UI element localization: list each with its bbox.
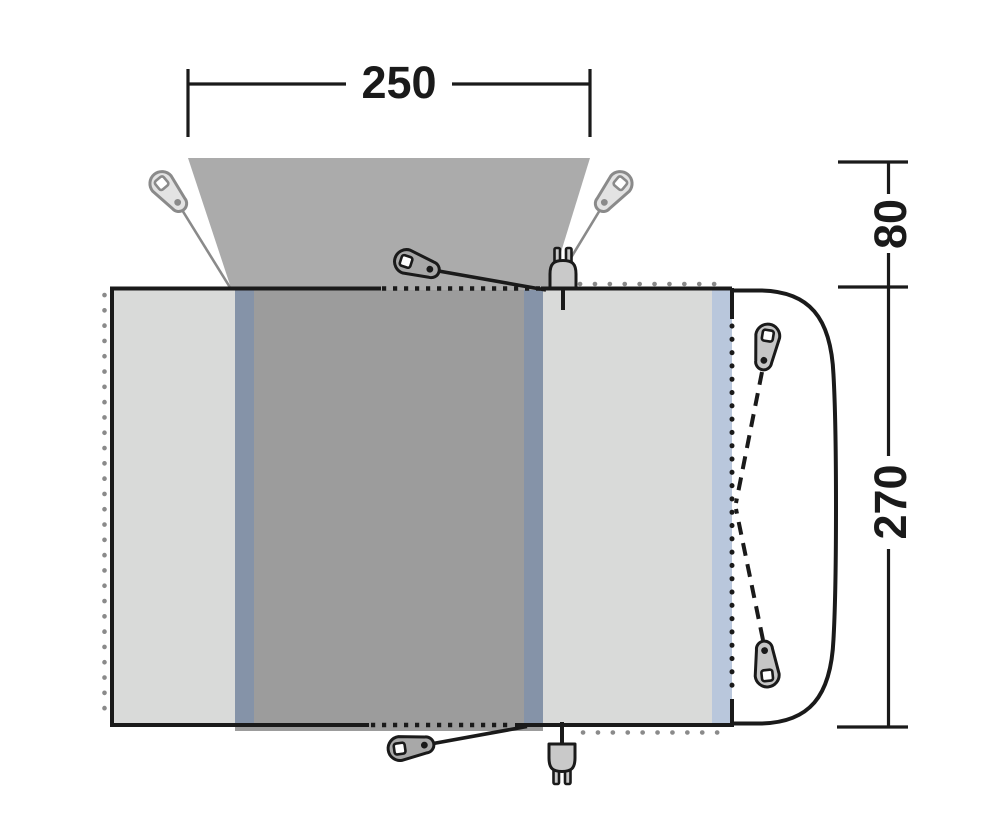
inner-tent-dark-panel [235,290,543,731]
peg-front-bottom-icon [387,732,436,762]
vehicle-section-fill [732,291,836,724]
connection-strip-blue [712,290,732,725]
canopy-panel [188,158,590,291]
dimension-canopy-width-label: 250 [361,57,436,108]
divider-strip-left [235,290,254,725]
power-plug-bottom-icon [549,722,575,784]
dimension-body-depth: 270 [837,287,916,727]
dimension-body-depth-label: 270 [865,464,916,539]
dimension-canopy-width: 250 [188,57,590,137]
dimension-canopy-depth-label: 80 [865,199,916,249]
dimension-canopy-depth: 80 [838,162,916,287]
peg-canopy-right-icon [589,167,637,218]
peg-canopy-left-icon [145,167,193,218]
floorplan-diagram: 250 80 270 [0,0,1000,826]
divider-strip-right [524,290,543,725]
